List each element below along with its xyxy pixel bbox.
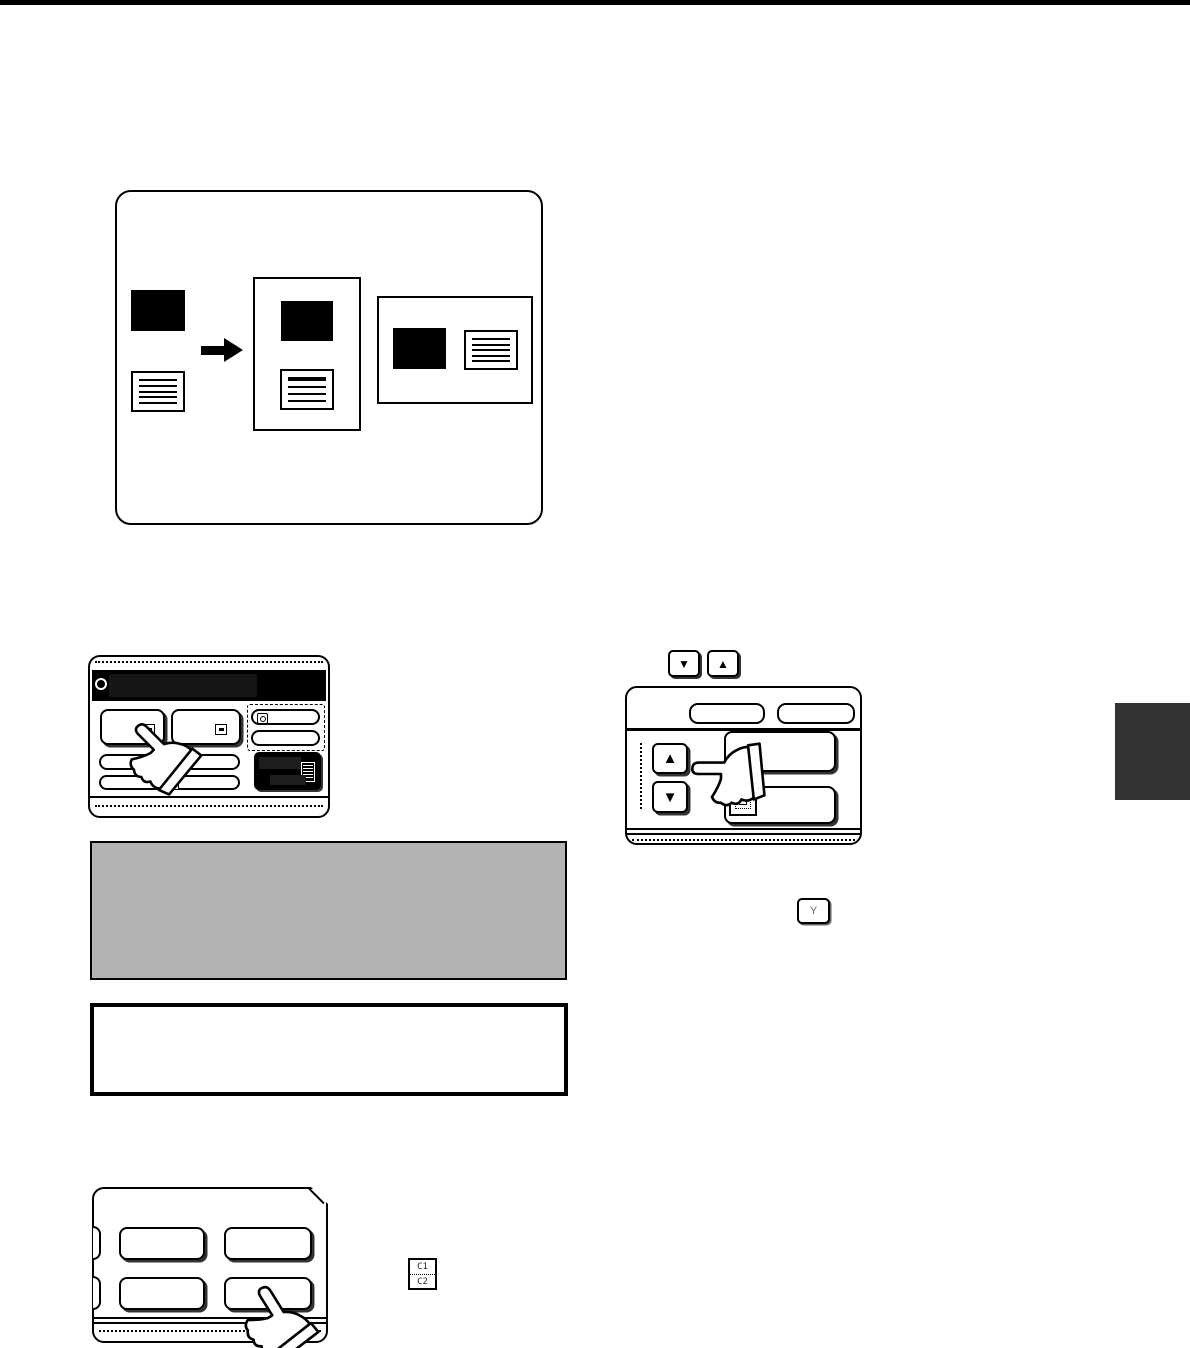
touch-panel-setting-screen: ▲ ▼	[625, 686, 862, 845]
y-hardware-key[interactable]: Y	[797, 898, 830, 924]
exposure-group	[247, 704, 325, 751]
header-button-1[interactable]	[689, 703, 765, 724]
size-button-3[interactable]	[119, 1277, 205, 1310]
mode-button-2-icon	[215, 724, 227, 735]
touch-panel-special-modes	[88, 655, 330, 818]
copied-text-block-2	[464, 330, 518, 370]
hardware-scroll-up-key[interactable]: ▲	[707, 650, 739, 677]
exposure-button-1[interactable]	[251, 709, 320, 725]
up-triangle-icon: ▲	[717, 658, 729, 670]
clipped-button-bottom	[93, 1276, 101, 1310]
up-triangle-icon: ▲	[663, 751, 678, 766]
cassette-key-icon[interactable]: C1 C2	[408, 1258, 437, 1290]
copied-photo-block	[281, 301, 333, 341]
cassette-key-line1: C1	[410, 1260, 435, 1275]
pointing-hand-icon	[689, 736, 771, 812]
selected-mode-sub-area	[270, 775, 306, 785]
scroll-dotted-guide	[640, 743, 642, 809]
selected-mode-label-area	[259, 757, 301, 769]
copied-photo-block-2	[393, 328, 446, 369]
panel-bottom-rule	[90, 796, 328, 798]
panel-bottom-rule-1	[627, 828, 860, 830]
landscape-copy-page	[377, 296, 533, 404]
scroll-up-button[interactable]: ▲	[652, 743, 688, 774]
header-button-2[interactable]	[777, 703, 855, 724]
original-text-thumbnail	[131, 371, 185, 412]
concept-diagram-box	[115, 190, 543, 525]
exposure-button-2[interactable]	[251, 730, 320, 746]
message-text-area	[109, 674, 257, 697]
touch-panel-size-select	[92, 1187, 328, 1343]
cassette-key-line2: C2	[410, 1275, 435, 1289]
right-arrow-icon	[201, 338, 245, 363]
chapter-side-tab	[1115, 703, 1190, 800]
hardware-scroll-down-key[interactable]: ▼	[668, 650, 700, 677]
original-photo-thumbnail	[131, 290, 185, 331]
message-bar-icon	[95, 678, 107, 690]
white-note-box	[90, 1003, 568, 1096]
size-button-2[interactable]	[224, 1227, 312, 1260]
selected-mode-button[interactable]	[254, 752, 321, 790]
message-display-bar	[92, 670, 326, 701]
panel-bottom-dotted-line	[632, 839, 855, 841]
size-button-1[interactable]	[119, 1227, 205, 1260]
scroll-down-button[interactable]: ▼	[652, 781, 688, 813]
down-triangle-icon: ▼	[678, 658, 690, 670]
y-key-label: Y	[810, 906, 817, 917]
clipped-button-top	[93, 1226, 101, 1260]
manual-page: ▼ ▲ ▲ ▼ Y	[0, 0, 1190, 1348]
panel-bottom-dotted-line	[95, 805, 323, 807]
folded-corner	[311, 1187, 328, 1204]
down-triangle-icon: ▼	[663, 790, 678, 805]
gray-note-box	[90, 841, 567, 980]
copied-text-block	[280, 369, 334, 410]
page-top-strip	[0, 0, 1190, 5]
exposure-button-1-icon	[257, 713, 268, 724]
panel-top-dotted-line	[95, 661, 323, 663]
panel-bottom-rule-2	[627, 833, 860, 835]
portrait-copy-page	[253, 277, 361, 431]
